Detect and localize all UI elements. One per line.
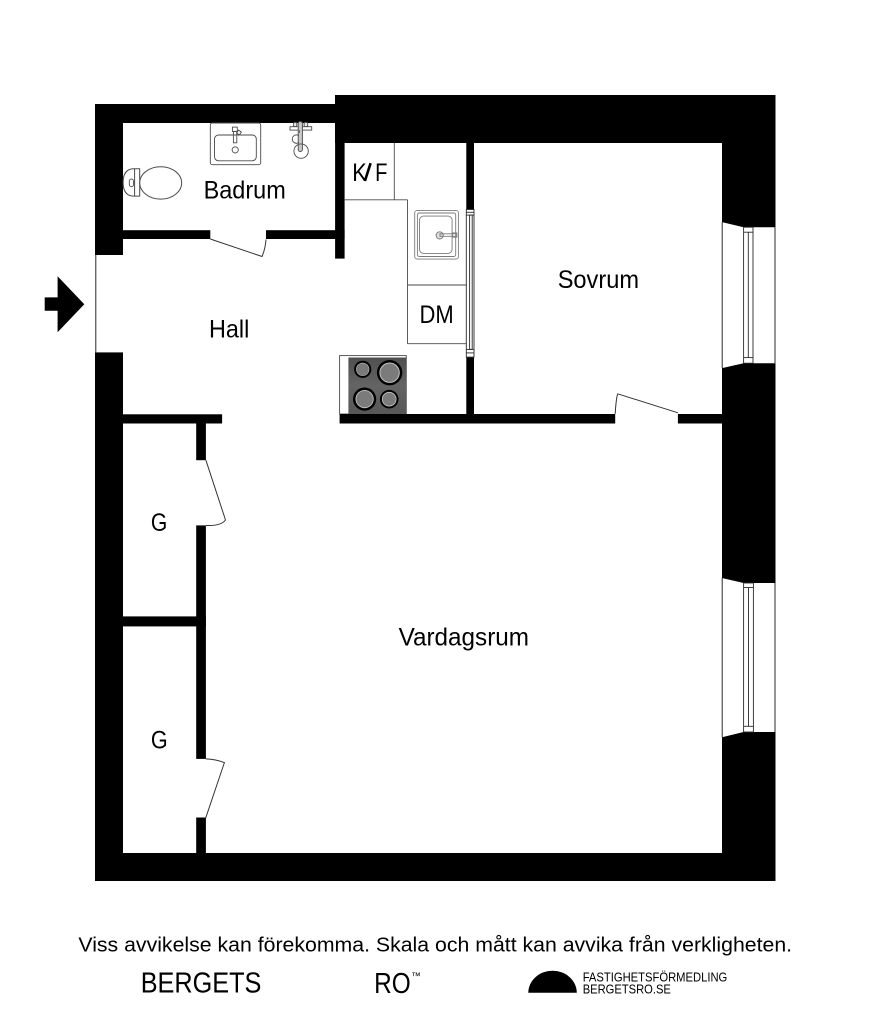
svg-text:Badrum: Badrum: [204, 177, 286, 205]
svg-text:BERGETS: BERGETS: [141, 968, 262, 1000]
svg-text:Vardagsrum: Vardagsrum: [399, 623, 529, 651]
svg-text:Viss avvikelse kan förekomma.: Viss avvikelse kan förekomma. Skala och …: [78, 933, 792, 956]
svg-text:DM: DM: [420, 301, 454, 329]
svg-text:G: G: [151, 727, 168, 755]
svg-text:RO: RO: [374, 968, 411, 1000]
svg-text:F: F: [375, 159, 387, 187]
svg-text:Hall: Hall: [209, 315, 249, 343]
svg-text:Sovrum: Sovrum: [558, 266, 639, 294]
svg-text:BERGETSRO.SE: BERGETSRO.SE: [583, 981, 671, 996]
svg-text:G: G: [151, 509, 167, 537]
svg-text:K: K: [352, 159, 367, 187]
svg-text:™: ™: [411, 971, 421, 982]
